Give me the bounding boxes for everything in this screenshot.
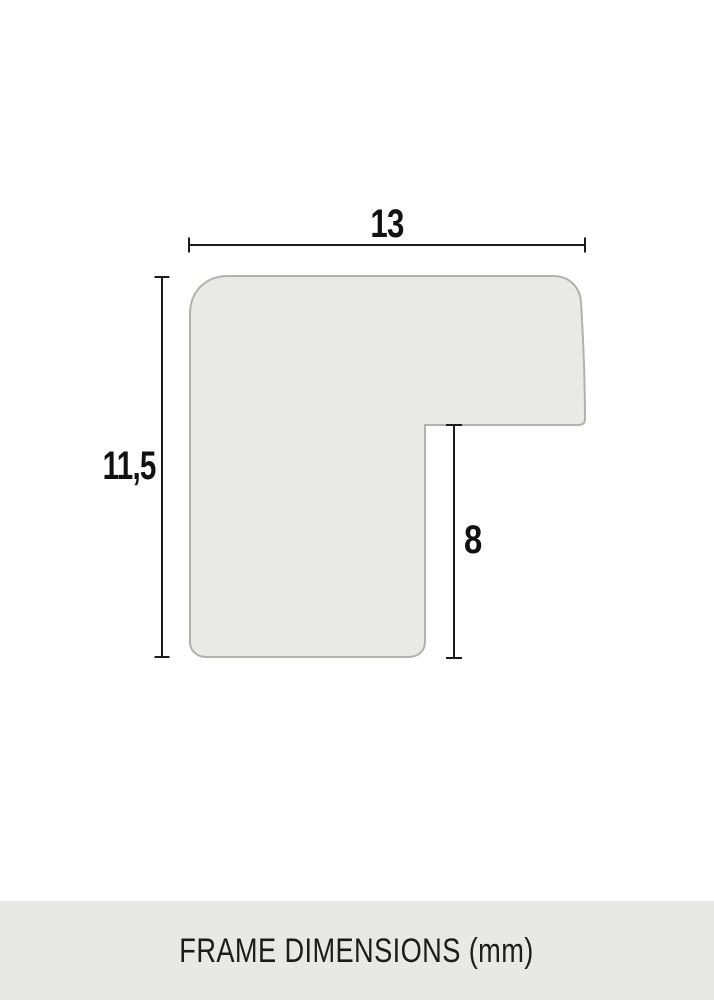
footer-caption: FRAME DIMENSIONS (mm)	[180, 934, 534, 968]
height-dimension-line	[155, 277, 170, 657]
rabbet-dimension-line	[446, 425, 462, 658]
footer-band: FRAME DIMENSIONS (mm)	[0, 901, 714, 1000]
frame-profile-shape	[190, 276, 585, 657]
frame-profile-diagram	[0, 0, 714, 1000]
height-dimension-label: 11,5	[103, 446, 156, 486]
diagram-canvas: 13 11,5 8 FRAME DIMENSIONS (mm)	[0, 0, 714, 1000]
width-dimension-label: 13	[370, 204, 403, 244]
rabbet-dimension-label: 8	[464, 520, 481, 560]
